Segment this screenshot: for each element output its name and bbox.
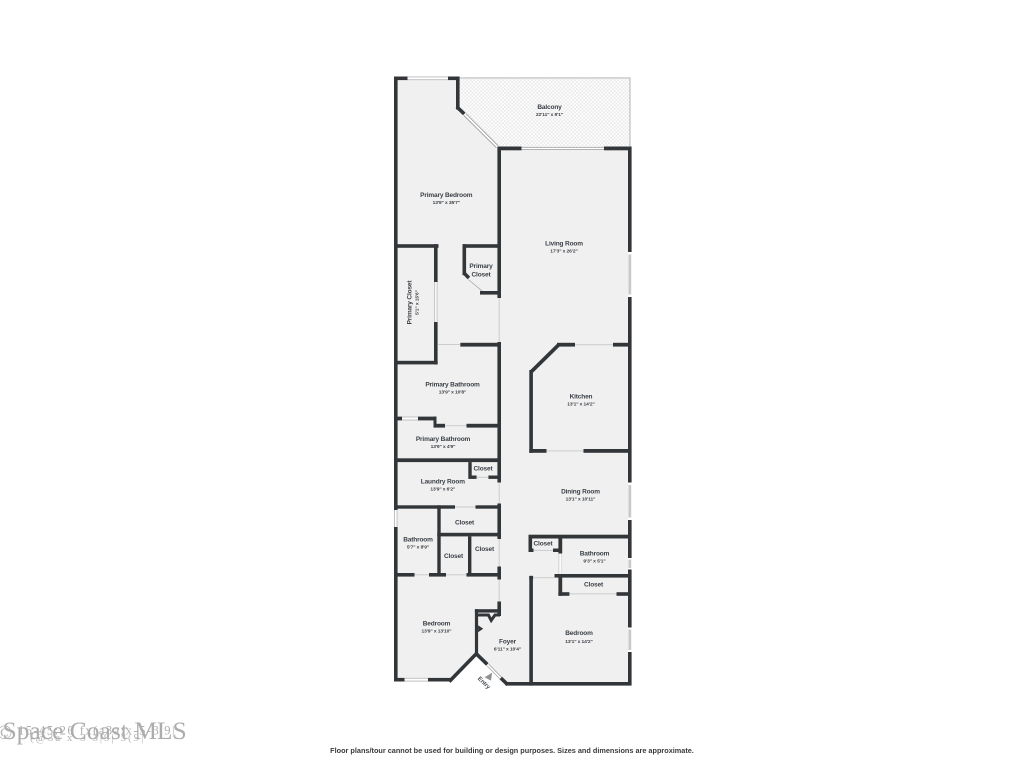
svg-text:Closet: Closet xyxy=(584,582,604,589)
svg-text:5'7" x 8'9": 5'7" x 8'9" xyxy=(407,544,429,550)
svg-text:Bedroom: Bedroom xyxy=(565,630,593,637)
svg-text:©: © xyxy=(0,722,12,744)
svg-text:Primary Bedroom: Primary Bedroom xyxy=(420,192,473,199)
svg-text:13'1" x 14'2": 13'1" x 14'2" xyxy=(565,639,592,645)
svg-text:17'3" x 26'2": 17'3" x 26'2" xyxy=(550,249,577,255)
svg-text:5'1" x 15'6": 5'1" x 15'6" xyxy=(415,290,421,315)
svg-text:Bathroom: Bathroom xyxy=(403,537,433,544)
svg-text:Primary: Primary xyxy=(469,263,493,270)
svg-text:Laundry Room: Laundry Room xyxy=(421,479,465,486)
svg-text:13'9" x 13'10": 13'9" x 13'10" xyxy=(421,628,451,634)
svg-text:Closet: Closet xyxy=(472,272,492,279)
svg-text:13'1" x 14'2": 13'1" x 14'2" xyxy=(567,401,594,407)
svg-text:13'9" x 4'9": 13'9" x 4'9" xyxy=(431,444,456,450)
svg-text:9'3" x 5'1": 9'3" x 5'1" xyxy=(583,558,605,564)
svg-text:Floor plans/tour cannot be use: Floor plans/tour cannot be used for buil… xyxy=(330,746,694,755)
svg-text:Bedroom: Bedroom xyxy=(423,621,451,628)
svg-text:13'1" x 10'11": 13'1" x 10'11" xyxy=(566,496,596,502)
svg-text:Balcony: Balcony xyxy=(537,104,562,111)
svg-text:Closet: Closet xyxy=(444,553,464,560)
svg-text:Closet: Closet xyxy=(475,546,495,553)
svg-text:Closet: Closet xyxy=(455,520,475,527)
svg-text:Kitchen: Kitchen xyxy=(570,394,593,401)
svg-text:Primary Bathroom: Primary Bathroom xyxy=(416,436,471,443)
svg-text:Closet: Closet xyxy=(474,466,494,473)
svg-text:13'9" x 6'2": 13'9" x 6'2" xyxy=(430,486,455,492)
svg-text:(@3a x-3 3|9| 3(9|: (@3a x-3 3|9| 3(9| xyxy=(30,732,145,744)
svg-text:Bathroom: Bathroom xyxy=(580,551,610,558)
svg-text:13'9" x 10'8": 13'9" x 10'8" xyxy=(439,389,466,395)
svg-text:Primary Closet: Primary Closet xyxy=(407,280,414,325)
svg-text:Dining Room: Dining Room xyxy=(561,489,600,496)
svg-text:6'11" x 10'4": 6'11" x 10'4" xyxy=(494,646,521,652)
svg-text:Closet: Closet xyxy=(534,541,554,548)
svg-text:13'9" x 35'7": 13'9" x 35'7" xyxy=(433,200,460,206)
svg-text:Primary Bathroom: Primary Bathroom xyxy=(425,382,480,389)
svg-text:22'11" x 9'1": 22'11" x 9'1" xyxy=(536,112,563,118)
svg-text:Living Room: Living Room xyxy=(545,241,583,248)
svg-text:Foyer: Foyer xyxy=(499,639,517,646)
